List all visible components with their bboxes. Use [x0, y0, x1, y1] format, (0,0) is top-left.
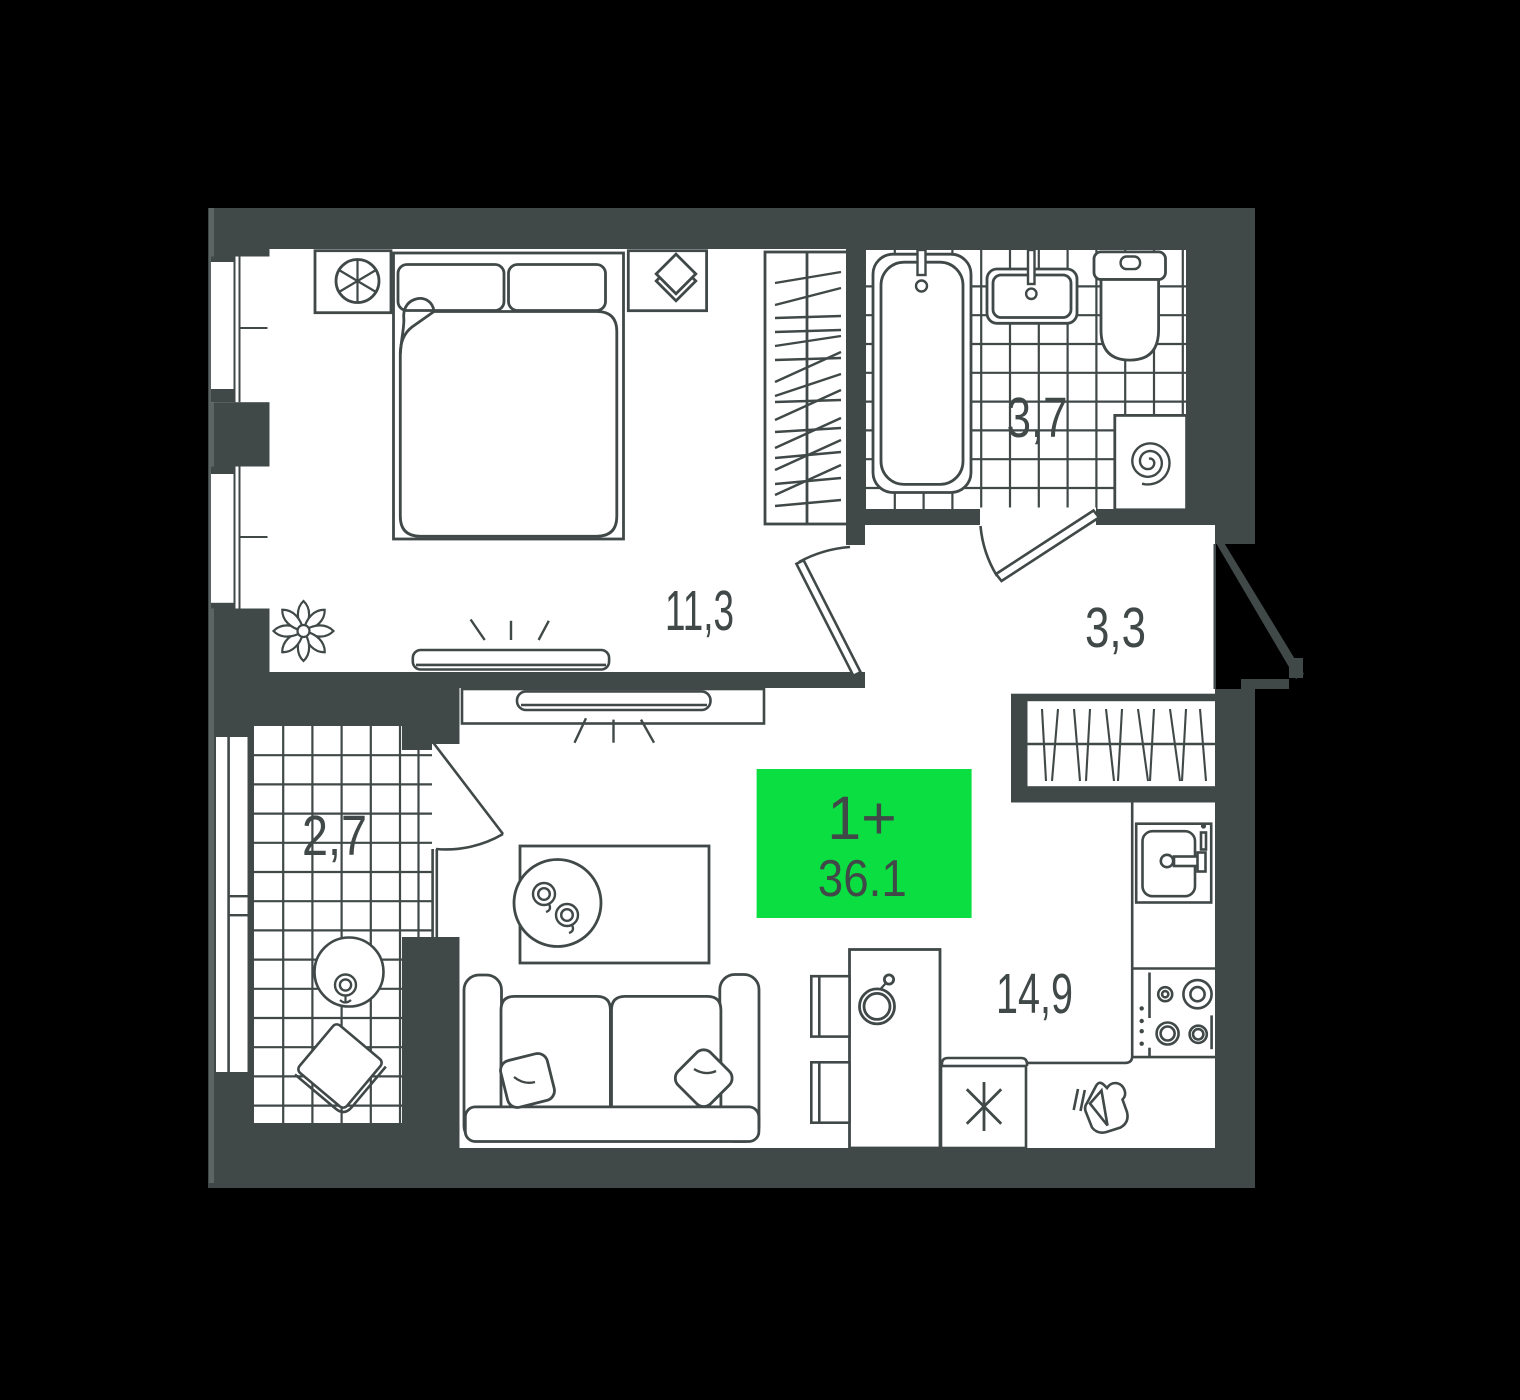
- svg-text:11,3: 11,3: [665, 579, 734, 643]
- svg-text:3,3: 3,3: [1085, 596, 1146, 660]
- svg-text:36.1: 36.1: [818, 849, 907, 907]
- svg-text:2,7: 2,7: [302, 804, 367, 868]
- svg-text:3,7: 3,7: [1007, 386, 1068, 450]
- svg-text:14,9: 14,9: [996, 962, 1073, 1026]
- svg-text:1+: 1+: [827, 784, 897, 852]
